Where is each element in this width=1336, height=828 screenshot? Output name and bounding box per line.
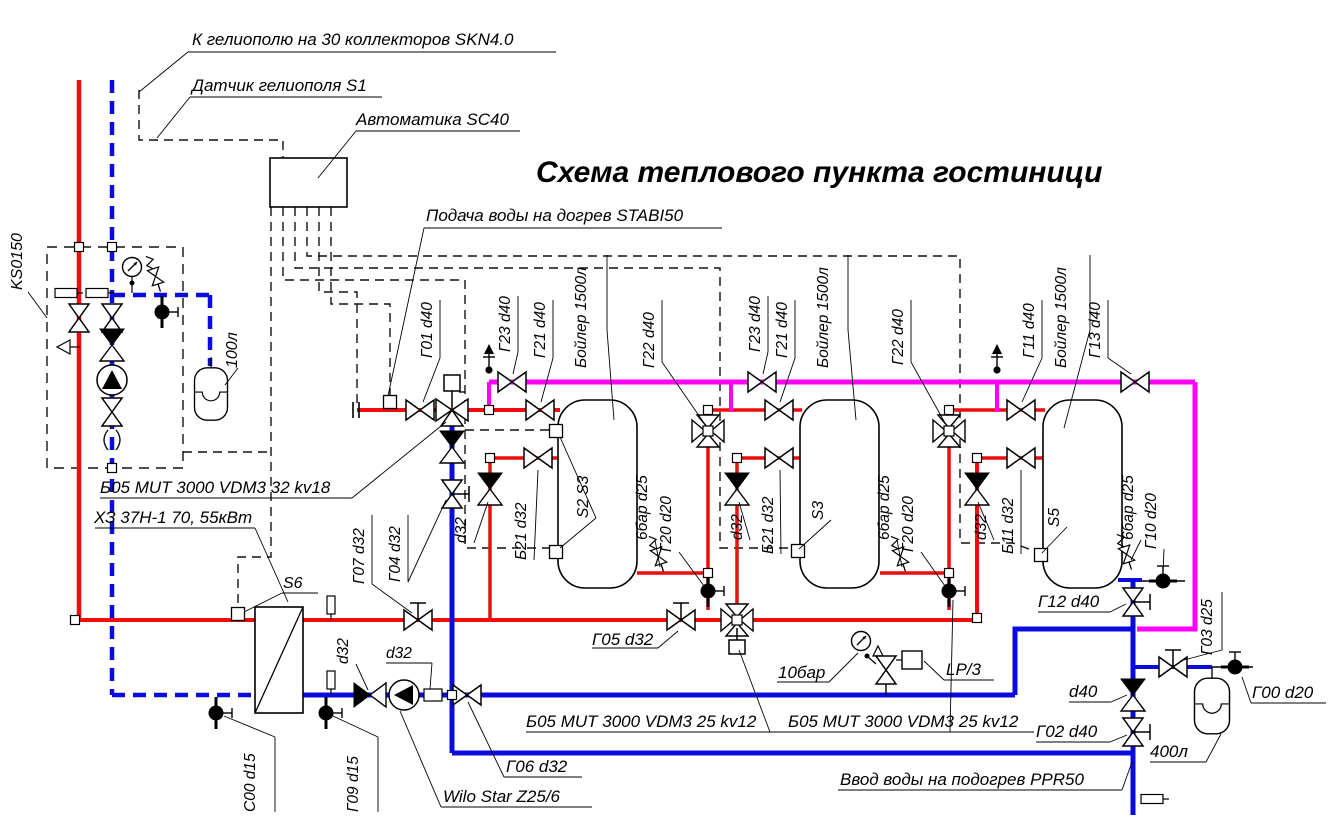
s3-label: S3 [810,501,827,520]
valve-g12-icon [1123,588,1150,616]
boiler-1-label: Бойлер 1500л [573,267,590,368]
tap-g20-1-icon [701,575,725,607]
solar-check-valve-icon [100,329,124,361]
boiler-3-label: Бойлер 1500л [1053,267,1070,368]
circulation-pump-wilo-icon [389,680,419,710]
boiler-2-label: Бойлер 1500л [815,267,832,368]
lp3-label: LP/3 [946,660,982,679]
valve-b21-1-icon [524,448,552,468]
g22-2-label: Г22 d40 [890,309,907,365]
solar-pump-icon [97,365,127,395]
inlet-pocket-icon [1141,795,1169,804]
solar-fill-tap-icon [155,296,179,328]
helio-sensor-label: Датчик гелиополя S1 [190,76,367,95]
d32-sub2-label: d32 [729,514,746,540]
boiler-3-tank [1043,400,1122,588]
solar-valve-cold-icon [102,304,122,332]
valve-g21-2-icon [765,400,793,420]
valve-g22-1-icon [692,415,724,447]
s6-label: S6 [283,575,303,592]
g01-label: Г01 d40 [419,302,436,358]
thermometer-hot-icon [327,596,335,620]
supply-sensor-pocket [384,396,397,409]
bar6-1-label: 6бар d25 [634,475,651,540]
thermometer-cold-icon [327,671,335,695]
automation-controller [270,158,347,207]
podacha-label: Подача воды на догрев STABI50 [426,206,684,225]
bar6-2-label: 6бар d25 [876,475,893,540]
g12-label: Г12 d40 [1038,592,1100,611]
valve-g06-icon [453,685,481,705]
check-valve-sub3-icon [965,473,989,505]
helio-field-label: К гелиополю на 30 коллекторов SKN4.0 [192,30,514,49]
g04-label: Г04 d32 [387,526,404,582]
g09-label: Г09 d15 [345,756,362,812]
air-vent-3-icon [991,344,1003,374]
pressure-reducer-icon [876,656,896,684]
pressure-switch-lp3-icon [902,651,922,669]
sensor-s6-pocket [232,608,245,621]
valve-g05-icon [667,603,695,630]
valve-g23-2-icon [748,372,776,392]
d32-pump-label: d32 [386,645,412,662]
hx-name-label: ХЗ 37Н-1 70, 55кВт [93,508,252,527]
tap-c00-icon [209,697,233,729]
check-valve-cold-drop-icon [440,431,464,463]
s2s3-label: S2 S3 [575,475,592,518]
sensor-s3-pocket [792,545,805,558]
check-valve-d32-icon [354,683,386,707]
g00-label: Г00 d20 [1252,683,1314,702]
wilo-label: Wilo Star Z25/6 [443,787,561,806]
flow-arrow-icon [57,340,80,354]
b05-mut-32-label: Б05 MUT 3000 VDM3 32 kv18 [100,478,331,497]
solar-valve-hot-icon [69,304,89,332]
g23-1-label: Г23 d40 [497,296,514,352]
d32-sub3-label: d32 [973,514,990,540]
valve-g23-1-icon [498,372,526,392]
g23-2-label: Г23 d40 [747,296,764,352]
g02-label: Г02 d40 [1036,722,1098,741]
bar10-label: 10бар [778,663,825,682]
boiler-2-tank [800,400,879,588]
g22-1-label: Г22 d40 [641,312,658,368]
heat-exchanger [255,607,303,713]
expansion-vessel-400l [1194,667,1229,734]
expansion-vessel-100l [195,357,228,420]
b21-1-label: Б21 d32 [513,502,530,560]
check-valve-sub1-icon [478,473,502,505]
valve-g07-icon [404,603,432,630]
tap-g09-icon [319,697,343,729]
g13-label: Г13 d40 [1087,302,1104,358]
vvod-label: Ввод воды на подогрев PPR50 [840,770,1084,789]
valve-g04-icon [442,480,469,508]
sensor-s2-pocket [550,425,563,438]
b05-mut-25b-label: Б05 MUT 3000 VDM3 25 kv12 [788,712,1019,731]
solar-pressure-gauge-icon [123,258,142,277]
g06-label: Г06 d32 [506,757,568,776]
valve-g01-icon [406,400,434,420]
tap-g00-icon [1221,652,1249,675]
schematic-canvas: К гелиополю на 30 коллекторов SKN4.0Датч… [0,0,1336,828]
page-title: Схема теплового пункта гостиници [536,156,1102,189]
ks0150-label: KS0150 [9,233,26,290]
boiler-1-tank [558,400,637,588]
d32-check-label: d32 [335,638,352,664]
bar6-3-label: 6бар d25 [1120,475,1137,540]
g21-1-label: Г21 d40 [532,302,549,358]
g07-label: Г07 d32 [351,528,368,584]
d40-label: d40 [1069,682,1098,701]
g20-2-label: Г20 d20 [900,496,917,552]
tank-100-label: 100л [224,332,241,368]
solar-safety-valve-icon [143,254,166,294]
g05-label: Г05 d32 [592,630,654,649]
valve-g21-1-icon [526,400,554,420]
check-valve-d40-icon [1121,679,1145,711]
sensor-s5-pocket [1035,549,1048,562]
g11-label: Г11 d40 [1021,303,1038,358]
s5-label: S5 [1046,508,1063,527]
solar-valve-lower-icon [102,398,122,426]
valve-b21-2-icon [765,448,793,468]
air-vent-1-icon [483,344,495,374]
valve-b11-icon [1007,448,1035,468]
mixing-valve-mut32-icon [436,375,468,426]
check-valve-sub2-icon [725,473,749,505]
valve-g03-icon [1159,650,1187,677]
heating-schematic: К гелиополю на 30 коллекторов SKN4.0Датч… [0,0,1336,828]
g10-label: Г10 d20 [1143,493,1160,549]
tank-400-label: 400л [1150,742,1188,761]
b11-label: Б11 d32 [1000,497,1017,554]
g21-2-label: Г21 d40 [774,302,791,358]
automation-label: Автоматика SC40 [355,110,509,129]
g03-label: Г03 d25 [1199,599,1216,655]
c00-label: С00 d15 [242,753,259,812]
gauge-10bar-icon [852,632,871,651]
g20-1-label: Г20 d20 [658,496,675,552]
d32-sub1-label: d32 [453,517,470,543]
valve-g02-icon [1123,718,1150,746]
b05-mut-25a-label: Б05 MUT 3000 VDM3 25 kv12 [526,712,757,731]
flex-connector-icon [424,689,442,701]
valve-g13-icon [1121,372,1149,392]
valve-g11-icon [1007,400,1035,420]
b21-2-label: Б21 d32 [760,496,777,554]
lp-safety-icon [873,646,883,656]
